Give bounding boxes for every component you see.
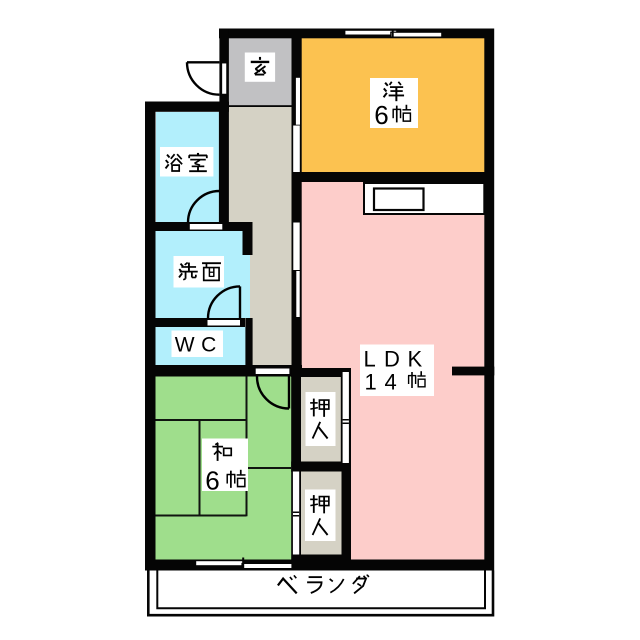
- svg-text:4: 4: [385, 370, 397, 395]
- svg-text:6: 6: [374, 100, 388, 130]
- svg-text:D: D: [384, 347, 400, 372]
- svg-text:K: K: [408, 347, 423, 372]
- svg-text:L: L: [364, 347, 376, 372]
- svg-text:1: 1: [365, 370, 377, 395]
- svg-text:WC: WC: [175, 334, 223, 357]
- svg-text:6: 6: [205, 466, 219, 496]
